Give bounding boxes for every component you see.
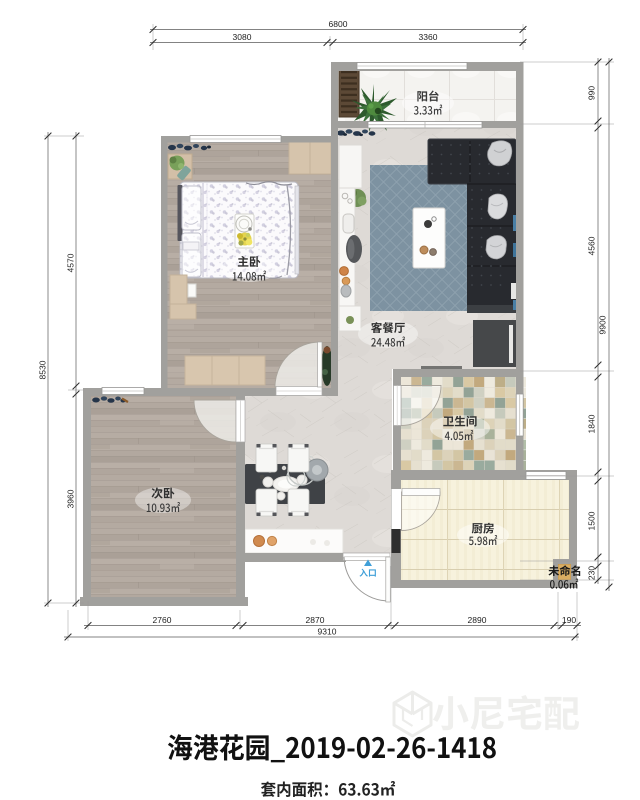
svg-text:1500: 1500 xyxy=(587,511,597,530)
svg-text:6800: 6800 xyxy=(329,19,348,29)
svg-text:2890: 2890 xyxy=(468,615,487,625)
svg-text:190: 190 xyxy=(562,615,576,625)
svg-text:2760: 2760 xyxy=(153,615,172,625)
svg-text:9900: 9900 xyxy=(598,315,608,334)
svg-text:1840: 1840 xyxy=(587,414,597,433)
svg-text:9310: 9310 xyxy=(318,627,337,637)
svg-text:4570: 4570 xyxy=(66,253,76,272)
svg-text:3360: 3360 xyxy=(419,32,438,42)
svg-text:230: 230 xyxy=(587,566,597,580)
svg-text:8530: 8530 xyxy=(38,360,48,379)
svg-text:990: 990 xyxy=(587,86,597,100)
svg-text:3080: 3080 xyxy=(233,32,252,42)
svg-text:2870: 2870 xyxy=(306,615,325,625)
svg-text:3960: 3960 xyxy=(66,489,76,508)
svg-text:4560: 4560 xyxy=(587,236,597,255)
